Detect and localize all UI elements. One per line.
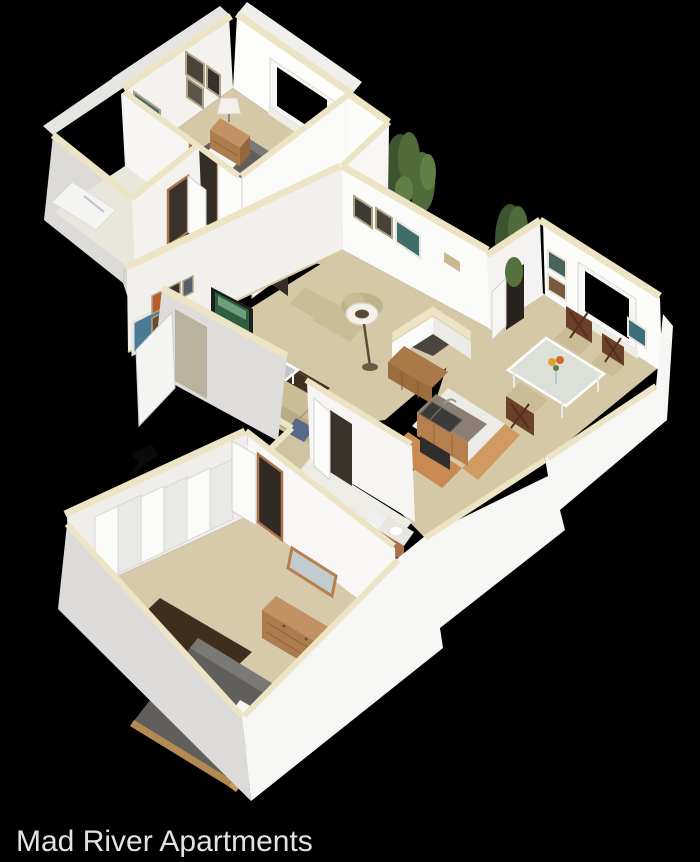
shrub — [505, 257, 523, 287]
floorplan-render: Mad River Apartments — [0, 0, 700, 862]
closet-bifold-door — [210, 459, 233, 530]
closet-bifold-door — [164, 477, 187, 552]
closet-bifold-door — [141, 486, 164, 563]
closet-bifold-door — [187, 468, 210, 541]
master-door-leaf — [232, 441, 256, 525]
caption-text: Mad River Apartments — [16, 825, 313, 858]
bathroom2-door-leaf — [314, 398, 330, 480]
closet-bifold-door — [118, 495, 141, 574]
floorplan-page: Mad River Apartments — [0, 0, 700, 862]
